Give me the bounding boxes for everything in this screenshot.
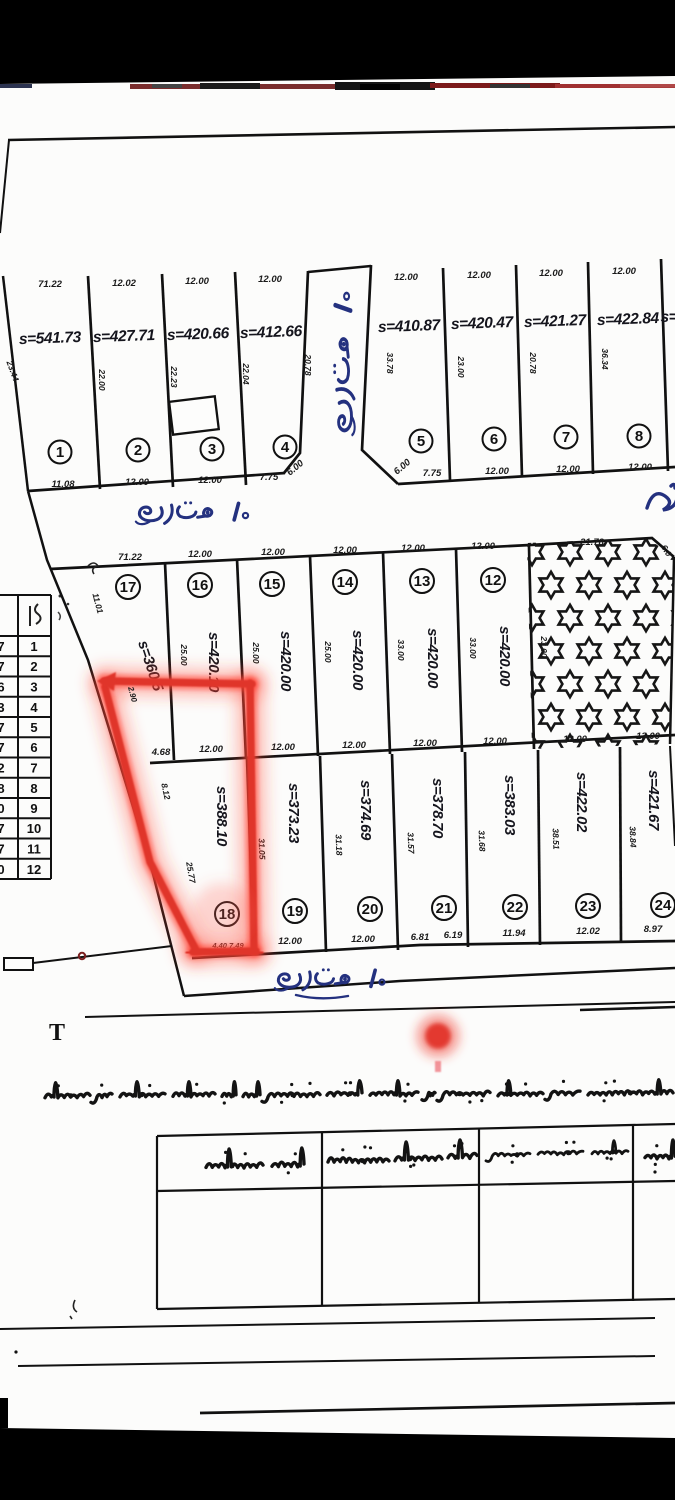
svg-text:s=427.71: s=427.71	[93, 327, 155, 346]
svg-text:12.00: 12.00	[351, 934, 375, 945]
svg-text:23.00: 23.00	[456, 355, 466, 378]
svg-text:20: 20	[362, 901, 379, 918]
svg-text:13.00: 13.00	[636, 731, 660, 742]
svg-text:s=420.00: s=420.00	[496, 626, 513, 687]
svg-text:31.18: 31.18	[334, 834, 345, 856]
svg-text:12.02: 12.02	[112, 278, 136, 289]
svg-text:7: 7	[0, 740, 5, 755]
svg-text:3: 3	[0, 700, 5, 715]
svg-text:s=420.00: s=420.00	[277, 631, 294, 692]
svg-text:s=410.87: s=410.87	[378, 317, 442, 336]
svg-text:4: 4	[30, 700, 38, 715]
svg-text:7: 7	[0, 639, 5, 654]
svg-text:12.00: 12.00	[258, 274, 282, 285]
svg-text:16: 16	[192, 577, 209, 594]
svg-text:11.08: 11.08	[51, 479, 75, 490]
svg-text:12.00: 12.00	[342, 740, 366, 751]
svg-text:6.81: 6.81	[411, 932, 430, 943]
svg-text:12.00: 12.00	[199, 744, 223, 755]
svg-text:s=420.00: s=420.00	[349, 630, 366, 691]
svg-text:7: 7	[0, 659, 5, 674]
svg-text:24: 24	[655, 897, 672, 914]
svg-text:21.78: 21.78	[579, 537, 604, 548]
svg-text:17: 17	[120, 579, 137, 596]
svg-text:12.00: 12.00	[333, 545, 357, 556]
svg-text:12.00: 12.00	[188, 549, 212, 560]
svg-text:7: 7	[30, 761, 37, 776]
svg-text:38.51: 38.51	[551, 828, 562, 850]
svg-text:36.34: 36.34	[600, 348, 610, 370]
svg-text:25.00: 25.00	[323, 640, 333, 663]
svg-text:12.02: 12.02	[576, 926, 600, 937]
svg-text:7.75: 7.75	[260, 472, 279, 483]
svg-text:12.00: 12.00	[271, 742, 295, 753]
svg-text:7: 7	[562, 429, 570, 446]
svg-text:12.00: 12.00	[483, 736, 507, 747]
svg-text:12.00: 12.00	[261, 547, 285, 558]
svg-text:4.68: 4.68	[151, 747, 171, 758]
svg-text:21: 21	[436, 900, 453, 917]
svg-text:2: 2	[30, 659, 37, 674]
svg-text:6: 6	[490, 431, 498, 448]
svg-text:12.00: 12.00	[125, 477, 149, 488]
svg-text:71.22: 71.22	[38, 279, 62, 290]
svg-text:25.00: 25.00	[179, 643, 189, 666]
svg-text:20.78: 20.78	[528, 351, 538, 374]
svg-text:s=541.73: s=541.73	[19, 329, 82, 348]
svg-text:3: 3	[30, 680, 37, 695]
svg-text:8: 8	[30, 781, 37, 796]
svg-text:6.19: 6.19	[444, 930, 463, 941]
svg-text:5: 5	[417, 433, 425, 450]
svg-text:s=422.84: s=422.84	[597, 310, 660, 329]
svg-text:31.57: 31.57	[406, 832, 417, 855]
svg-text:31.68: 31.68	[477, 830, 488, 852]
svg-text:0: 0	[0, 801, 5, 816]
svg-text:12.00: 12.00	[563, 734, 587, 745]
svg-text:12.00: 12.00	[278, 936, 302, 947]
svg-text:10: 10	[27, 821, 41, 836]
svg-text:33.78: 33.78	[385, 352, 395, 374]
svg-text:T: T	[49, 1020, 65, 1046]
svg-text:s=383.03: s=383.03	[501, 775, 518, 836]
svg-text:s=420.66: s=420.66	[167, 325, 230, 344]
svg-text:71.22: 71.22	[118, 552, 142, 563]
svg-text:12.00: 12.00	[198, 475, 222, 486]
svg-text:1: 1	[30, 639, 37, 654]
svg-text:s=421.27: s=421.27	[524, 312, 588, 331]
svg-text:9: 9	[30, 801, 37, 816]
svg-text:s=420.47: s=420.47	[451, 314, 515, 333]
svg-text:22.04: 22.04	[241, 362, 251, 385]
svg-text:8: 8	[635, 428, 643, 445]
svg-text:s=373.23: s=373.23	[285, 783, 302, 844]
svg-text:11.94: 11.94	[502, 928, 526, 939]
svg-text:1: 1	[56, 444, 64, 461]
svg-text:12.00: 12.00	[628, 462, 652, 473]
svg-text:s=374.69: s=374.69	[357, 780, 374, 841]
svg-text:s=388.10: s=388.10	[213, 786, 230, 847]
svg-text:11: 11	[27, 842, 41, 857]
svg-text:25.00: 25.00	[251, 641, 261, 664]
svg-text:s=422.02: s=422.02	[573, 772, 590, 833]
svg-text:14: 14	[337, 574, 354, 591]
svg-text:8.97: 8.97	[644, 924, 663, 935]
svg-text:12.00: 12.00	[556, 464, 580, 475]
svg-text:6: 6	[30, 740, 37, 755]
svg-text:7: 7	[0, 720, 5, 735]
svg-text:s=4: s=4	[660, 309, 675, 326]
svg-text:3: 3	[208, 441, 216, 458]
svg-text:19: 19	[287, 903, 304, 920]
svg-text:23.00: 23.00	[539, 635, 549, 658]
svg-text:7: 7	[0, 821, 5, 836]
svg-text:13: 13	[414, 573, 431, 590]
svg-text:12.00: 12.00	[539, 268, 563, 279]
svg-text:23: 23	[580, 898, 597, 915]
svg-text:33.00: 33.00	[396, 639, 406, 661]
svg-text:s=421.67: s=421.67	[645, 770, 662, 831]
svg-text:22: 22	[507, 899, 524, 916]
svg-text:38.84: 38.84	[628, 826, 639, 848]
svg-text:12.00: 12.00	[612, 266, 636, 277]
svg-text:7: 7	[0, 842, 5, 857]
svg-text:5: 5	[30, 720, 37, 735]
svg-text:12: 12	[27, 862, 41, 877]
svg-text:12.00: 12.00	[401, 543, 425, 554]
svg-text:6: 6	[0, 680, 5, 695]
svg-text:7.75: 7.75	[423, 468, 442, 479]
svg-text:20.78: 20.78	[303, 353, 313, 376]
svg-text:12.00: 12.00	[485, 466, 509, 477]
svg-text:12.00: 12.00	[185, 276, 209, 287]
svg-text:4: 4	[281, 439, 290, 456]
svg-text:s=420.00: s=420.00	[424, 628, 441, 689]
svg-text:15: 15	[264, 576, 281, 593]
svg-text:12.00: 12.00	[471, 541, 495, 552]
svg-text:2: 2	[0, 761, 5, 776]
svg-text:s=378.70: s=378.70	[429, 778, 446, 839]
svg-text:12.00: 12.00	[467, 270, 491, 281]
svg-text:2: 2	[134, 442, 142, 459]
svg-text:12.00: 12.00	[394, 272, 418, 283]
svg-text:22.23: 22.23	[169, 365, 179, 388]
svg-text:8: 8	[0, 781, 5, 796]
svg-text:s=412.66: s=412.66	[240, 323, 303, 342]
svg-text:12: 12	[485, 572, 502, 589]
svg-text:33.00: 33.00	[468, 637, 478, 659]
svg-text:22.00: 22.00	[97, 368, 107, 391]
svg-text:12.00: 12.00	[413, 738, 437, 749]
svg-text:0: 0	[0, 862, 5, 877]
